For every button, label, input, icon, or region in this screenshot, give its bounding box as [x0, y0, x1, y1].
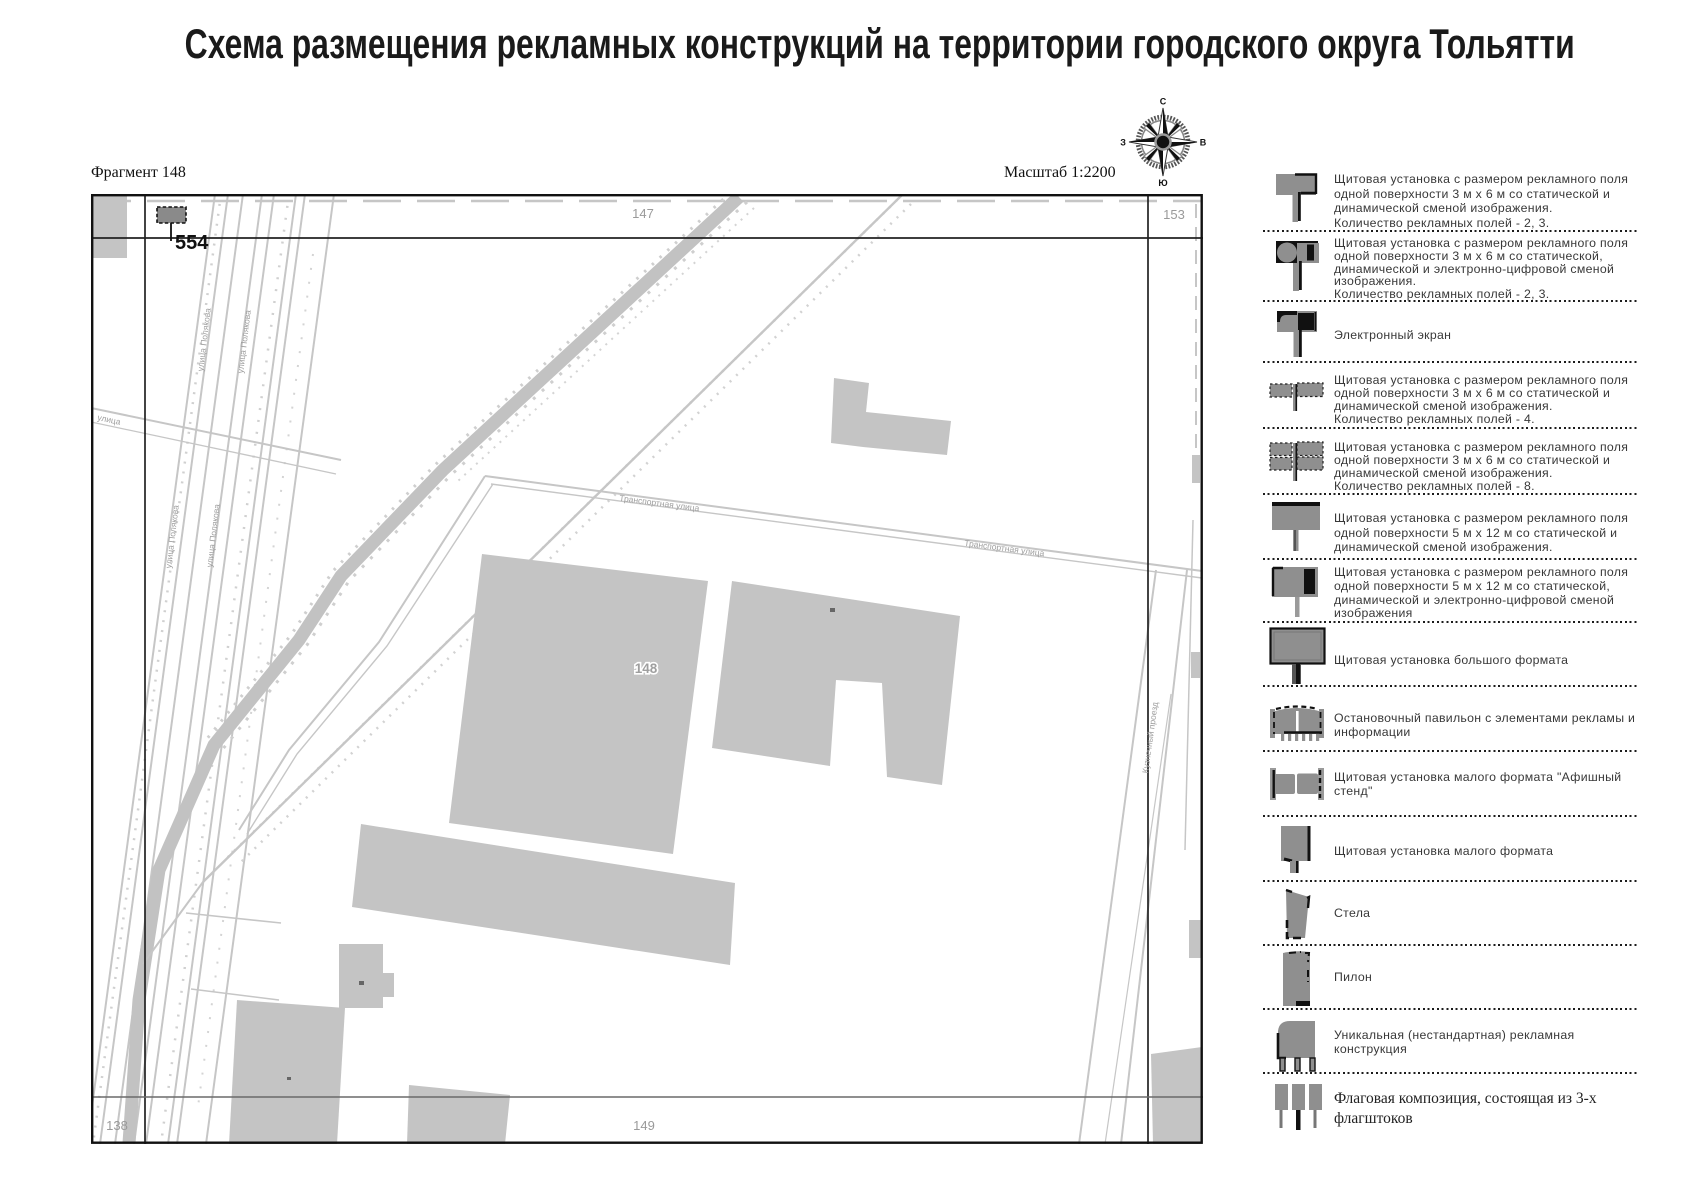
svg-text:147: 147 [632, 206, 654, 221]
svg-text:С: С [1160, 97, 1167, 107]
svg-text:Транспортная улица: Транспортная улица [964, 538, 1046, 558]
svg-text:В: В [1200, 138, 1207, 148]
svg-text:554: 554 [175, 232, 209, 254]
svg-text:Ю: Ю [1158, 178, 1167, 188]
svg-text:З: З [1120, 138, 1126, 148]
svg-text:138: 138 [106, 1118, 128, 1133]
svg-text:148: 148 [635, 661, 658, 676]
svg-text:Транспортная улица: Транспортная улица [619, 493, 701, 513]
svg-text:улица Полякова: улица Полякова [204, 503, 222, 568]
svg-text:153: 153 [1163, 207, 1185, 222]
svg-text:149: 149 [633, 1118, 655, 1133]
svg-text:Кузнечный проезд: Кузнечный проезд [1140, 701, 1160, 774]
